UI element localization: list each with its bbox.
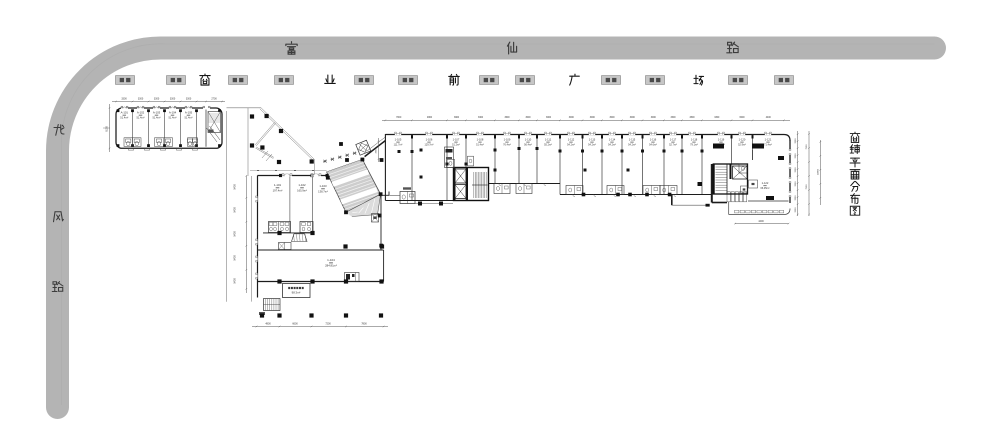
svg-text:51.2m²: 51.2m² (452, 143, 460, 146)
svg-text:71.4m²: 71.4m² (764, 143, 772, 146)
svg-text:5400: 5400 (234, 207, 237, 213)
svg-text:1-106: 1-106 (426, 138, 433, 142)
svg-text:284.81m²: 284.81m² (325, 264, 337, 268)
svg-text:3300: 3300 (795, 195, 797, 201)
svg-text:54.2m²: 54.2m² (628, 143, 636, 146)
svg-text:52.7m²: 52.7m² (669, 143, 677, 146)
svg-text:3900: 3900 (454, 117, 460, 119)
svg-text:4800: 4800 (265, 322, 271, 325)
svg-text:111.7m²: 111.7m² (394, 143, 403, 146)
svg-text:3000: 3000 (569, 117, 575, 119)
svg-text:7800: 7800 (361, 322, 367, 325)
svg-text:7500: 7500 (806, 184, 808, 190)
svg-text:A-102: A-102 (137, 111, 145, 115)
svg-text:1-116: 1-116 (650, 138, 657, 142)
svg-text:54.2m²: 54.2m² (567, 143, 575, 146)
svg-text:3300: 3300 (795, 153, 797, 159)
svg-text:1-119: 1-119 (718, 138, 725, 142)
svg-text:A-103: A-103 (153, 111, 161, 115)
svg-text:1-108: 1-108 (477, 138, 484, 142)
svg-text:3000: 3000 (651, 117, 657, 119)
svg-text:5400: 5400 (234, 184, 237, 190)
svg-text:3300: 3300 (795, 138, 797, 144)
svg-text:3000: 3000 (546, 117, 552, 119)
svg-text:3300: 3300 (795, 181, 797, 187)
svg-text:197.4m²: 197.4m² (273, 188, 283, 192)
svg-text:54.6m²: 54.6m² (649, 143, 657, 146)
svg-text:1-110: 1-110 (525, 138, 532, 142)
svg-text:3300: 3300 (795, 167, 797, 173)
svg-text:51.4m²: 51.4m² (169, 116, 177, 120)
svg-text:1-102: 1-102 (298, 183, 306, 187)
svg-text:3300: 3300 (186, 98, 192, 101)
svg-text:3000: 3000 (525, 117, 531, 119)
svg-text:1-117: 1-117 (670, 138, 677, 142)
svg-text:1-111: 1-111 (545, 138, 552, 142)
svg-text:A-101: A-101 (121, 111, 129, 115)
svg-text:5400: 5400 (234, 231, 237, 237)
svg-text:3300: 3300 (154, 98, 160, 101)
svg-text:4400: 4400 (766, 117, 772, 119)
svg-text:1-103: 1-103 (319, 184, 327, 188)
svg-text:5400: 5400 (234, 278, 237, 284)
svg-text:98.3m²: 98.3m² (292, 291, 301, 295)
svg-text:3300: 3300 (714, 117, 720, 119)
svg-text:5400: 5400 (234, 255, 237, 261)
svg-text:165.9m²: 165.9m² (297, 188, 307, 192)
svg-text:51.4m²: 51.4m² (120, 116, 128, 120)
svg-text:1-115: 1-115 (629, 138, 636, 142)
svg-text:4500: 4500 (689, 117, 695, 119)
svg-text:3000: 3000 (590, 117, 596, 119)
svg-text:4400: 4400 (758, 220, 764, 223)
svg-text:129.7m²: 129.7m² (425, 143, 434, 146)
svg-text:A-105: A-105 (185, 111, 193, 115)
svg-text:3300: 3300 (478, 117, 484, 119)
svg-text:1-114: 1-114 (609, 138, 616, 142)
svg-text:54.2m²: 54.2m² (588, 143, 596, 146)
svg-text:A-104: A-104 (169, 111, 177, 115)
svg-text:51.4m²: 51.4m² (476, 143, 484, 146)
svg-text:1-113: 1-113 (589, 138, 596, 142)
svg-text:56.4m²: 56.4m² (524, 143, 532, 146)
svg-text:6600: 6600 (292, 322, 298, 325)
svg-text:55.2m²: 55.2m² (544, 143, 552, 146)
svg-text:3300: 3300 (121, 98, 127, 101)
svg-text:3300: 3300 (170, 98, 176, 101)
svg-text:1-104: 1-104 (327, 258, 335, 262)
svg-text:54.2m²: 54.2m² (608, 143, 616, 146)
svg-text:52.9m²: 52.9m² (738, 143, 746, 146)
svg-text:79.1m²: 79.1m² (690, 143, 698, 146)
svg-text:6000: 6000 (739, 117, 745, 119)
svg-text:1-122: 1-122 (762, 181, 769, 185)
svg-text:51.4m²: 51.4m² (185, 116, 193, 120)
svg-text:66.05m²: 66.05m² (761, 187, 770, 190)
svg-text:7200: 7200 (325, 322, 331, 325)
svg-text:138.7m²: 138.7m² (318, 189, 328, 193)
svg-text:1-112: 1-112 (568, 138, 575, 142)
svg-text:3000: 3000 (630, 117, 636, 119)
svg-text:1-105: 1-105 (395, 138, 402, 142)
svg-text:7000: 7000 (396, 117, 402, 119)
svg-text:51.4m²: 51.4m² (153, 116, 161, 120)
svg-text:3300: 3300 (138, 98, 144, 101)
svg-text:3300: 3300 (795, 207, 797, 213)
svg-text:51.4m²: 51.4m² (137, 116, 145, 120)
svg-text:3000: 3000 (609, 117, 615, 119)
svg-text:2700: 2700 (211, 98, 217, 101)
svg-text:1-120: 1-120 (739, 138, 746, 142)
svg-text:76.4m²: 76.4m² (503, 143, 511, 146)
svg-text:3300: 3300 (670, 117, 676, 119)
svg-text:1-109: 1-109 (504, 138, 511, 142)
svg-text:1-107: 1-107 (453, 138, 460, 142)
svg-text:1-118: 1-118 (691, 138, 698, 142)
svg-text:3600: 3600 (504, 117, 510, 119)
svg-text:14800: 14800 (817, 168, 819, 175)
svg-text:1-121: 1-121 (765, 138, 772, 142)
svg-text:7500: 7500 (806, 144, 808, 150)
svg-text:4800: 4800 (427, 117, 433, 119)
svg-text:1-101: 1-101 (274, 183, 282, 187)
svg-text:8100: 8100 (106, 126, 109, 132)
svg-text:3900: 3900 (376, 148, 378, 154)
